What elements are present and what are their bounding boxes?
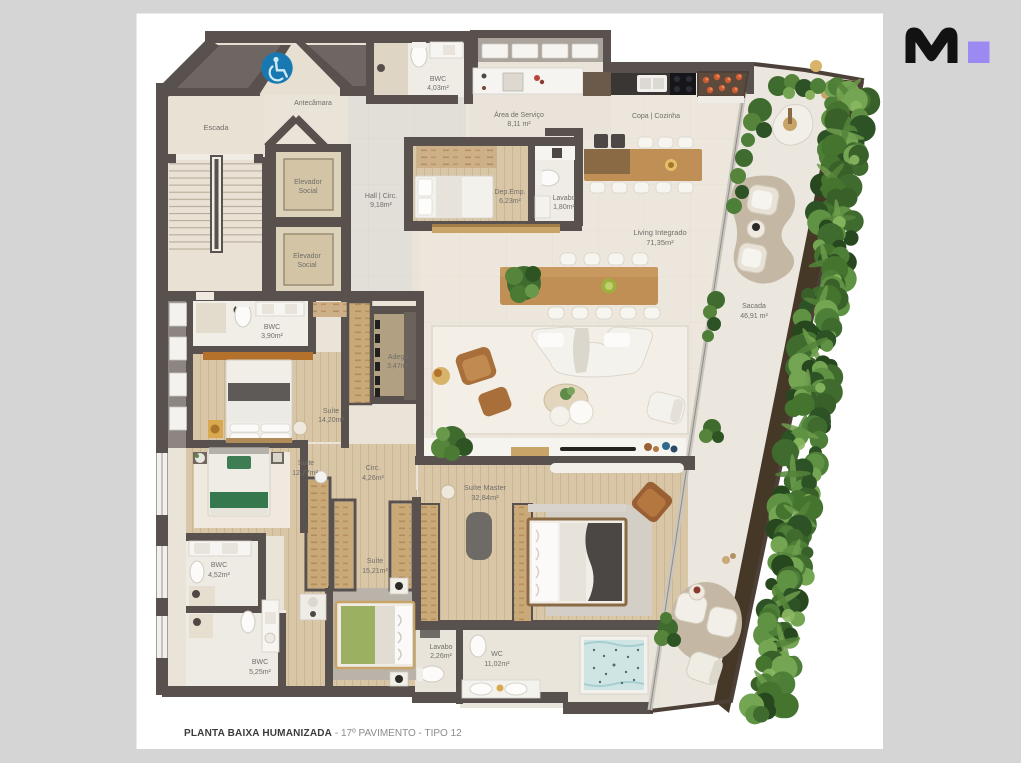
svg-text:PLANTA BAIXA HUMANIZADA - 17º: PLANTA BAIXA HUMANIZADA - 17º PAVIMENTO … (184, 728, 462, 739)
svg-text:Suíte: Suíte (323, 408, 339, 415)
svg-text:15,21m²: 15,21m² (362, 568, 388, 575)
svg-text:46,91 m²: 46,91 m² (740, 313, 768, 320)
svg-text:Social: Social (298, 188, 318, 195)
svg-text:BWC: BWC (264, 324, 280, 331)
svg-text:6,23m²: 6,23m² (499, 198, 521, 205)
svg-text:WC: WC (491, 651, 503, 658)
svg-text:2,26m²: 2,26m² (430, 653, 452, 660)
svg-text:1,80m²: 1,80m² (553, 204, 575, 211)
svg-text:4,26m²: 4,26m² (362, 475, 384, 482)
svg-text:Copa | Cozinha: Copa | Cozinha (632, 113, 680, 120)
svg-text:Adega: Adega (388, 354, 408, 361)
svg-text:4,52m²: 4,52m² (208, 572, 230, 579)
svg-text:11,02m²: 11,02m² (484, 661, 510, 668)
svg-text:4,03m²: 4,03m² (427, 85, 449, 92)
svg-text:Elevador: Elevador (294, 179, 322, 186)
svg-text:Circ.: Circ. (366, 465, 380, 472)
svg-text:Living Integrado: Living Integrado (633, 228, 686, 237)
svg-text:Dep.Emp.: Dep.Emp. (494, 189, 525, 196)
svg-text:8,11 m²: 8,11 m² (507, 121, 531, 128)
svg-text:Suíte Master: Suíte Master (464, 483, 507, 492)
svg-text:Lavabo: Lavabo (430, 644, 453, 651)
svg-text:Suíte: Suíte (367, 558, 383, 565)
svg-text:71,35m²: 71,35m² (646, 238, 674, 247)
svg-text:3,47m²: 3,47m² (387, 363, 409, 370)
svg-text:Elevador: Elevador (293, 253, 321, 260)
svg-text:BWC: BWC (211, 562, 227, 569)
svg-text:BWC: BWC (252, 659, 268, 666)
svg-text:12,77m²: 12,77m² (292, 470, 318, 477)
svg-text:Área de Serviço: Área de Serviço (494, 110, 544, 119)
svg-text:Antecâmara: Antecâmara (294, 100, 332, 107)
svg-text:BWC: BWC (430, 76, 446, 83)
svg-text:Lavabo: Lavabo (553, 195, 576, 202)
svg-text:14,20m²: 14,20m² (318, 417, 344, 424)
svg-text:5,25m²: 5,25m² (249, 669, 271, 676)
svg-text:3,90m²: 3,90m² (261, 333, 283, 340)
svg-text:Sacada: Sacada (742, 303, 766, 310)
svg-text:9,18m²: 9,18m² (370, 202, 392, 209)
svg-text:Suíte: Suíte (298, 460, 314, 467)
svg-text:Social: Social (297, 262, 317, 269)
svg-text:32,84m²: 32,84m² (471, 493, 499, 502)
svg-text:Escada: Escada (203, 123, 229, 132)
svg-text:Hall | Circ.: Hall | Circ. (365, 193, 397, 200)
